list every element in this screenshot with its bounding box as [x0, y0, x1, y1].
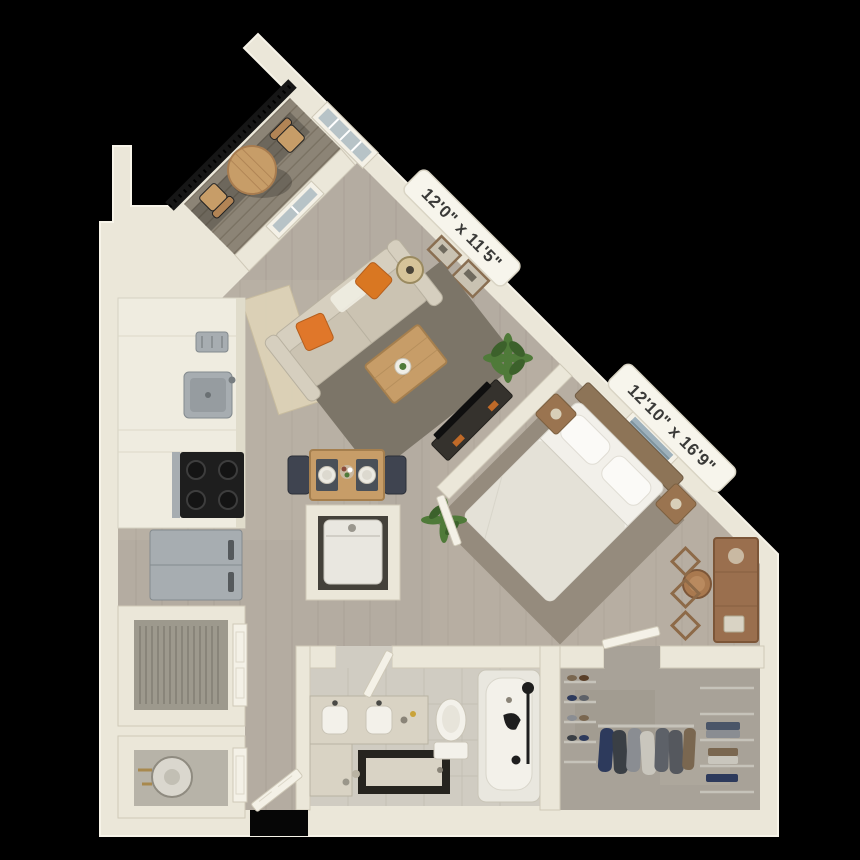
- floor-plan-stage: 12'0" x 11'5" 12'10" x 16'9": [0, 0, 860, 860]
- fridge-handle: [228, 572, 234, 592]
- dining-chair: [288, 456, 310, 494]
- cooktop-oven: [172, 452, 244, 518]
- sink-basin: [322, 706, 348, 734]
- desk: [714, 538, 758, 642]
- centerpiece: [340, 465, 354, 479]
- floor-lamp: [397, 257, 423, 283]
- laundry-closet: [306, 505, 400, 600]
- toilet: [434, 699, 468, 759]
- faucet: [229, 377, 236, 384]
- fridge-handle: [228, 540, 234, 560]
- sink-basin: [366, 706, 392, 734]
- faucet: [376, 700, 382, 706]
- faucet: [332, 700, 338, 706]
- floor-plan-render: 12'0" x 11'5" 12'10" x 16'9": [0, 0, 860, 860]
- bathtub: [478, 670, 540, 802]
- water-heater-closet: [118, 736, 245, 818]
- desk-paper: [724, 616, 744, 632]
- entry-opening: [250, 810, 308, 836]
- wall-segment: [660, 646, 764, 668]
- closet-doorway: [604, 646, 660, 668]
- bath-closet-wall: [540, 646, 560, 810]
- toilet-tank: [434, 742, 468, 759]
- dining-nook: [288, 450, 406, 500]
- wall-segment: [392, 646, 604, 668]
- drain: [506, 697, 512, 703]
- toaster: [196, 332, 228, 352]
- desk-lamp: [728, 548, 744, 564]
- dining-chair: [384, 456, 406, 494]
- hvac-closet: [118, 606, 245, 726]
- bathroom-west-wall: [296, 646, 310, 810]
- refrigerator: [150, 530, 242, 600]
- kitchen-sink: [184, 372, 236, 418]
